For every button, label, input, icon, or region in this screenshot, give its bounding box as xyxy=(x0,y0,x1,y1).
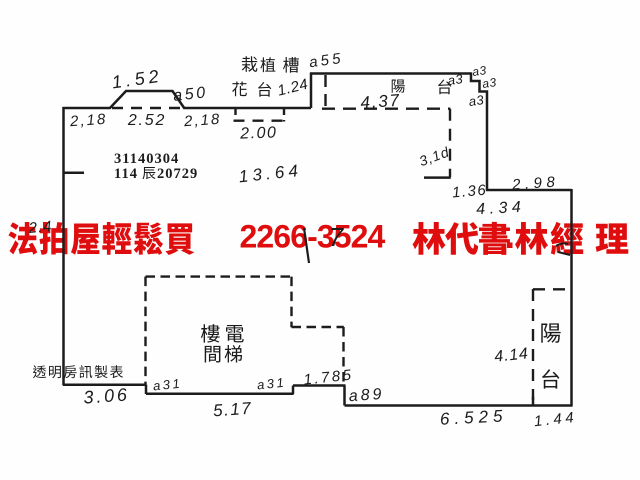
svg-text:2.52: 2.52 xyxy=(127,112,166,129)
svg-text:4.34: 4.34 xyxy=(476,199,526,219)
svg-text:4.14: 4.14 xyxy=(494,345,530,365)
svg-text:2.00: 2.00 xyxy=(239,124,278,142)
svg-text:a3: a3 xyxy=(468,92,486,109)
svg-text:5.17: 5.17 xyxy=(212,399,252,421)
svg-text:1.36: 1.36 xyxy=(451,182,488,202)
svg-text:6.525: 6.525 xyxy=(439,406,507,429)
svg-text:a3: a3 xyxy=(447,71,465,88)
svg-text:2.98: 2.98 xyxy=(511,173,560,193)
svg-text:3.06: 3.06 xyxy=(83,384,131,407)
svg-text:2,18: 2,18 xyxy=(69,111,108,131)
svg-text:a31: a31 xyxy=(152,376,183,394)
svg-text:a3: a3 xyxy=(481,75,497,91)
svg-text:31140304: 31140304 xyxy=(114,151,179,167)
svg-text:a89: a89 xyxy=(348,386,385,405)
svg-text:2266-3524: 2266-3524 xyxy=(240,219,386,255)
svg-text:a31: a31 xyxy=(256,375,287,393)
svg-text:4.37: 4.37 xyxy=(360,91,402,113)
svg-text:114: 114 xyxy=(114,166,138,182)
svg-text:2,18: 2,18 xyxy=(183,111,222,131)
svg-text:20729: 20729 xyxy=(157,166,198,182)
svg-text:7: 7 xyxy=(329,222,345,252)
svg-text:a50: a50 xyxy=(172,84,208,105)
svg-text:2.4: 2.4 xyxy=(27,218,53,237)
